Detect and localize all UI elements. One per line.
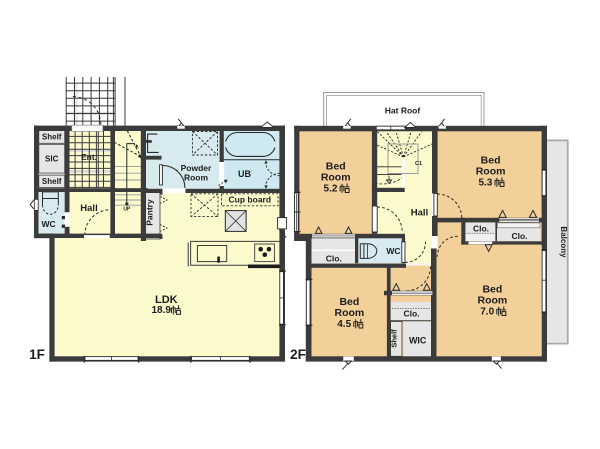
svg-text:UB: UB — [238, 169, 251, 179]
svg-text:2F: 2F — [290, 347, 306, 362]
svg-text:Pantry: Pantry — [145, 199, 155, 226]
svg-text:18.9: 18.9 — [151, 305, 171, 316]
svg-text:Room: Room — [184, 173, 209, 183]
svg-text:5.3: 5.3 — [478, 178, 492, 189]
svg-text:Clo.: Clo. — [326, 253, 342, 263]
svg-text:Cup board: Cup board — [229, 195, 272, 205]
svg-text:WC: WC — [42, 219, 56, 229]
svg-text:Room: Room — [335, 307, 365, 319]
svg-text:UP: UP — [123, 207, 131, 213]
svg-text:Clo.: Clo. — [473, 224, 489, 234]
svg-text:Hall: Hall — [80, 203, 97, 214]
svg-text:Balcony: Balcony — [559, 226, 568, 258]
svg-text:Shelf: Shelf — [42, 133, 62, 142]
svg-text:LDK: LDK — [155, 294, 178, 306]
svg-text:1F: 1F — [29, 347, 45, 362]
svg-text:Clo.: Clo. — [403, 309, 419, 319]
svg-text:Room: Room — [478, 295, 508, 307]
svg-text:7.0: 7.0 — [480, 307, 494, 318]
svg-text:Ent.: Ent. — [81, 152, 97, 162]
svg-text:Powder: Powder — [181, 163, 212, 173]
svg-text:Hat Roof: Hat Roof — [385, 106, 421, 116]
svg-text:Room: Room — [321, 172, 351, 184]
svg-text:WC: WC — [386, 246, 400, 256]
svg-text:Clo.: Clo. — [511, 231, 527, 241]
svg-text:Shelf: Shelf — [42, 177, 62, 186]
svg-text:SIC: SIC — [45, 155, 59, 164]
svg-text:5.2: 5.2 — [324, 184, 338, 195]
svg-text:Room: Room — [476, 166, 506, 178]
svg-text:Hall: Hall — [411, 208, 428, 219]
svg-text:4.5: 4.5 — [337, 319, 351, 330]
svg-text:C1: C1 — [415, 161, 422, 167]
svg-text:Shelf: Shelf — [389, 329, 398, 348]
svg-text:WIC: WIC — [409, 336, 427, 346]
